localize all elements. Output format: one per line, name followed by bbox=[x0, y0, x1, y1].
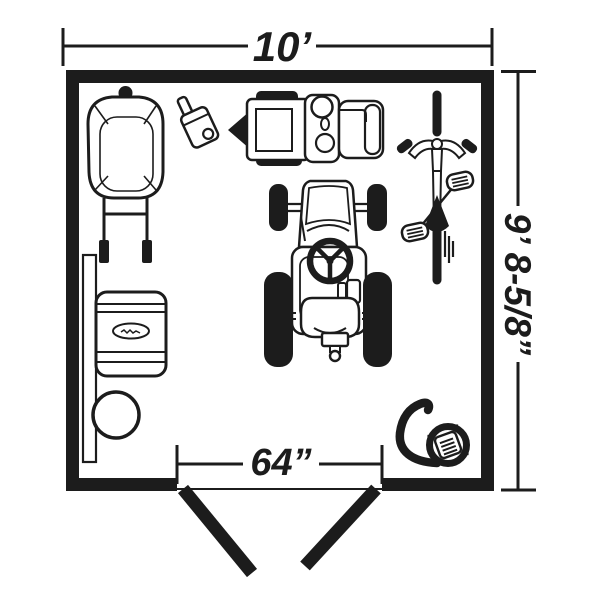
door-leaf-right bbox=[305, 489, 376, 566]
door-leaf-left bbox=[183, 489, 252, 573]
grill-foot bbox=[99, 240, 109, 263]
mower-hitch bbox=[322, 333, 348, 346]
hose-reel bbox=[400, 403, 469, 466]
riding-mower bbox=[264, 181, 392, 367]
mower-lever-small bbox=[338, 283, 346, 299]
blower-detail bbox=[321, 118, 329, 130]
mower-front-wheel bbox=[367, 184, 387, 231]
mower-hitch-ring bbox=[330, 351, 340, 361]
floor-plan-page: 10’ 9’ 8-5/8” bbox=[0, 0, 600, 600]
mower-seat bbox=[301, 298, 359, 337]
bike-pedal-left bbox=[401, 221, 430, 242]
grill-foot bbox=[142, 240, 152, 263]
snow-blower bbox=[228, 91, 383, 166]
bike-pedal-right bbox=[446, 170, 475, 191]
width-dimension: 10’ bbox=[63, 23, 492, 70]
floor-plan: 10’ 9’ 8-5/8” bbox=[0, 0, 600, 600]
height-dim-label: 9’ 8-5/8” bbox=[497, 213, 538, 356]
bucket bbox=[93, 392, 139, 438]
bike-head-tube bbox=[432, 149, 442, 171]
blower-engine-cap bbox=[312, 97, 333, 118]
bike-speed-lines bbox=[445, 231, 453, 263]
door-dimension: 64” bbox=[177, 442, 382, 484]
blower-pull-start bbox=[316, 134, 334, 152]
double-door bbox=[183, 489, 376, 573]
wall-board bbox=[83, 255, 96, 462]
door-dim-label: 64” bbox=[250, 442, 311, 484]
height-dimension: 9’ 8-5/8” bbox=[497, 72, 538, 491]
mower-front-wheel bbox=[269, 184, 288, 231]
bbq-grill bbox=[88, 86, 163, 263]
bike-stem bbox=[432, 139, 442, 149]
width-dim-label: 10’ bbox=[253, 23, 313, 70]
mower-rear-wheel bbox=[264, 272, 293, 367]
mower-rear-wheel bbox=[363, 272, 392, 367]
gas-can bbox=[172, 90, 219, 149]
storage-bin bbox=[96, 292, 166, 376]
bicycle bbox=[395, 95, 479, 280]
